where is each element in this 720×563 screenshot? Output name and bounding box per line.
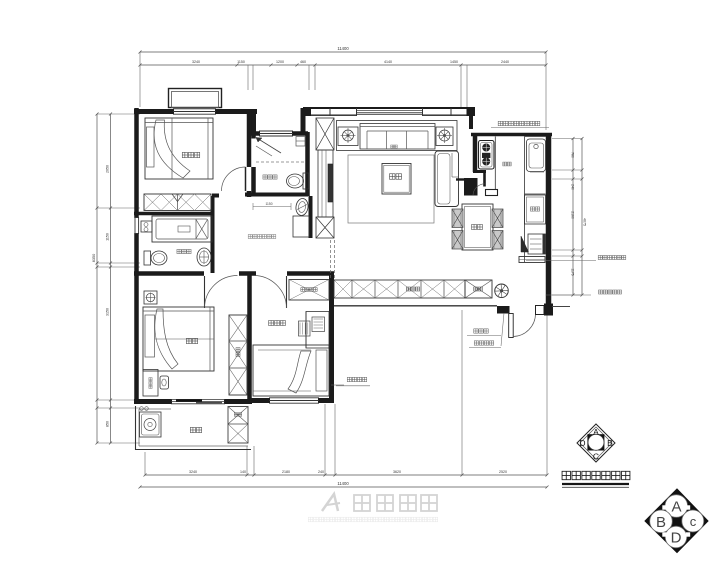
svg-text:2520: 2520: [499, 470, 507, 474]
svg-text:11400: 11400: [337, 46, 349, 51]
svg-text:460: 460: [300, 60, 306, 64]
svg-text:4075: 4075: [583, 218, 587, 226]
svg-text:D: D: [579, 438, 585, 448]
svg-text:240: 240: [318, 470, 324, 474]
svg-text:2440: 2440: [501, 60, 509, 64]
svg-text:3150: 3150: [106, 308, 110, 316]
svg-text:3620: 3620: [393, 470, 401, 474]
svg-text:1150: 1150: [106, 233, 110, 241]
svg-text:3240: 3240: [189, 470, 197, 474]
svg-text:1150: 1150: [265, 202, 272, 206]
svg-text:B: B: [607, 438, 613, 448]
svg-text:2050: 2050: [106, 165, 110, 173]
svg-text:11400: 11400: [337, 481, 349, 486]
svg-text:B: B: [656, 514, 666, 531]
svg-text:8350: 8350: [92, 254, 96, 262]
svg-text:780: 780: [571, 152, 575, 158]
svg-text:3240: 3240: [192, 60, 200, 64]
svg-text:2160: 2160: [571, 211, 575, 219]
svg-text:D: D: [671, 530, 682, 547]
svg-text:A: A: [593, 427, 599, 437]
svg-text:240: 240: [571, 184, 575, 190]
svg-text:850: 850: [106, 421, 110, 427]
svg-text:1175: 1175: [571, 268, 575, 275]
svg-text:c: c: [690, 514, 697, 529]
svg-text:2180: 2180: [282, 470, 290, 474]
svg-text:4140: 4140: [384, 60, 392, 64]
svg-text:140: 140: [240, 470, 246, 474]
svg-text:C: C: [593, 452, 599, 462]
svg-text:A: A: [671, 499, 681, 516]
svg-text:1200: 1200: [276, 60, 284, 64]
svg-text:1450: 1450: [450, 60, 458, 64]
